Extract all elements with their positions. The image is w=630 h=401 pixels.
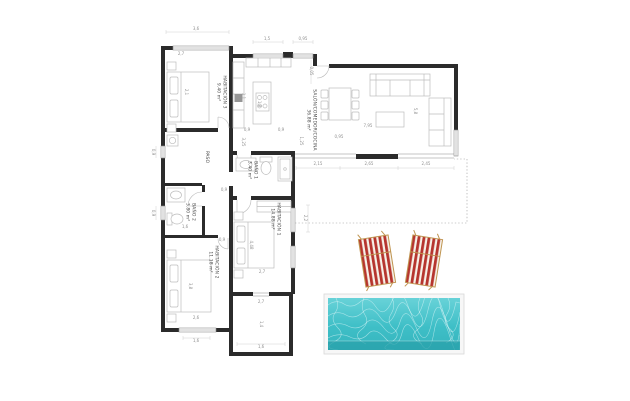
room-name: HABITACIÓN 2 (213, 245, 219, 278)
dimension-label: 3,8 (188, 283, 192, 289)
dimension-label: 7,95 (364, 124, 373, 128)
room-label-bano-2: BAÑO 2 3.80 m² (185, 203, 196, 221)
dimension-label: 1,5 (264, 37, 270, 41)
labels-overlay: HABITACIÓN 3 9.40 m² SALÓN/COMEDOR/COCIN… (0, 0, 630, 401)
dimension-label: 0,9 (219, 238, 225, 242)
room-label-bano-1: BAÑO 1 3.40 m² (247, 161, 258, 179)
room-name: PASO (203, 151, 209, 163)
room-area: 36.88 m² (306, 109, 312, 130)
dimension-label: 1,6 (258, 345, 264, 349)
dimension-label: 1,8 (257, 101, 261, 107)
dimension-label: 2,45 (422, 162, 431, 166)
floor-plan-canvas: HABITACIÓN 3 9.40 m² SALÓN/COMEDOR/COCIN… (0, 0, 630, 401)
room-area: 3.80 m² (185, 203, 191, 221)
dimension-label: 2,2 (303, 215, 307, 221)
room-name: BAÑO 1 (252, 161, 258, 179)
room-area: 14.88 m² (270, 208, 276, 229)
dimension-label: 2,7 (259, 270, 265, 274)
dimension-label: 0,9 (151, 149, 155, 155)
dimension-label: 0,95 (299, 37, 308, 41)
room-label-habitacion-1: HABITACIÓN 1 14.88 m² (270, 202, 281, 235)
dimension-label: 3,25 (241, 138, 245, 147)
room-area: 3.40 m² (247, 161, 253, 179)
room-area: 9.40 m² (216, 83, 222, 101)
dimension-label: 0,05 (309, 67, 313, 76)
room-label-paso: PASO (203, 151, 209, 163)
dimension-label: 5,8 (413, 108, 417, 114)
dimension-label: 2,6 (193, 316, 199, 320)
dimension-label: 1,6 (182, 225, 188, 229)
dimension-label: 2,15 (314, 162, 323, 166)
dimension-label: 0,9 (221, 188, 227, 192)
dimension-label: 0,9 (244, 128, 250, 132)
room-name: BAÑO 2 (190, 203, 196, 221)
dimension-label: 4,48 (249, 241, 253, 250)
room-name: HABITACIÓN 3 (221, 75, 227, 108)
room-name: SALÓN/COMEDOR/COCINA (311, 89, 317, 150)
dimension-label: 3,6 (193, 27, 199, 31)
dimension-label: 1,25 (299, 137, 303, 146)
room-name: HABITACIÓN 1 (275, 202, 281, 235)
room-label-salon: SALÓN/COMEDOR/COCINA 36.88 m² (306, 89, 317, 150)
room-label-habitacion-2: HABITACIÓN 2 11.18 m² (208, 245, 219, 278)
dimension-label: 1,1 (241, 93, 245, 99)
dimension-label: 2,65 (365, 162, 374, 166)
room-area: 11.18 m² (208, 251, 214, 272)
dimension-label: 2,7 (178, 52, 184, 56)
dimension-label: 1,4 (259, 321, 263, 327)
room-label-habitacion-3: HABITACIÓN 3 9.40 m² (216, 75, 227, 108)
dimension-label: 0,9 (151, 210, 155, 216)
dimension-label: 0,95 (335, 135, 344, 139)
dimension-label: 2,1 (184, 89, 188, 95)
dimension-label: 2,7 (258, 300, 264, 304)
dimension-label: 0,9 (278, 128, 284, 132)
dimension-label: 1,6 (193, 339, 199, 343)
